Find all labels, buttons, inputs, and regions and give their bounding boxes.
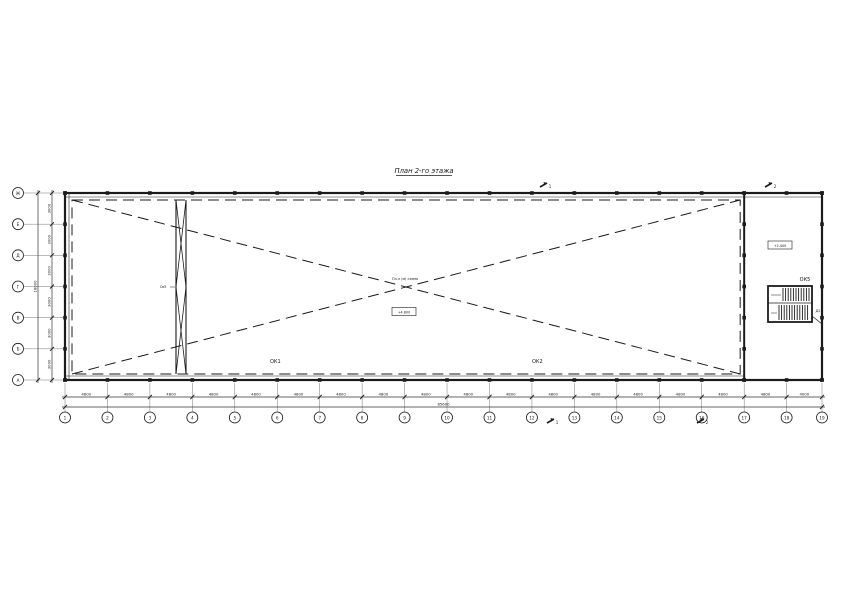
axis-bubble-column: 10 bbox=[442, 412, 453, 423]
column-marker bbox=[63, 347, 67, 351]
column-marker bbox=[360, 378, 364, 382]
column-marker bbox=[403, 191, 407, 195]
bay-dimension: 4800 bbox=[124, 391, 134, 396]
column-marker bbox=[318, 378, 322, 382]
bay-dimension: 4800 bbox=[81, 391, 91, 396]
column-marker bbox=[63, 191, 67, 195]
section-number: 1 bbox=[556, 420, 559, 425]
bay-dimension: 4800 bbox=[633, 391, 643, 396]
axis-number: 15 bbox=[657, 415, 663, 420]
axis-bubble-column: 2 bbox=[102, 412, 113, 423]
column-marker bbox=[700, 378, 704, 382]
column-marker bbox=[403, 378, 407, 382]
column-marker bbox=[530, 191, 534, 195]
column-marker bbox=[148, 191, 152, 195]
axis-number: 6 bbox=[276, 415, 279, 420]
axis-number: 14 bbox=[614, 415, 620, 420]
column-marker bbox=[191, 378, 195, 382]
row-dimension: 3000 bbox=[47, 328, 52, 338]
column-marker bbox=[657, 378, 661, 382]
window-mark-ok2: ОК2 bbox=[532, 359, 543, 365]
axis-bubble-row: Б bbox=[13, 343, 34, 354]
bay-dimension: 4800 bbox=[421, 391, 431, 396]
column-marker bbox=[742, 378, 746, 382]
bay-dimension: 4000 bbox=[799, 391, 809, 396]
column-marker bbox=[275, 378, 279, 382]
axis-bubble-row: Г bbox=[13, 281, 34, 292]
bay-dimension: 4800 bbox=[506, 391, 516, 396]
column-marker bbox=[488, 191, 492, 195]
section-cut-marks: 1212 bbox=[540, 182, 777, 425]
page-title: План 2-го этажа bbox=[394, 167, 453, 175]
axis-number: 2 bbox=[106, 415, 109, 420]
column-marker bbox=[742, 316, 746, 320]
column-marker bbox=[785, 378, 789, 382]
axis-letter: Е bbox=[17, 222, 20, 227]
section-number: 1 bbox=[549, 184, 552, 189]
column-marker bbox=[820, 347, 824, 351]
column-marker bbox=[742, 347, 746, 351]
total-width-dimension: 85600 bbox=[437, 401, 450, 406]
bay-dimension: 4800 bbox=[548, 391, 558, 396]
axis-bubble-column: 14 bbox=[611, 412, 622, 423]
column-marker bbox=[148, 378, 152, 382]
column-marker bbox=[63, 316, 67, 320]
door-mark-d2: Д2 bbox=[816, 309, 821, 313]
column-marker bbox=[785, 191, 789, 195]
row-dimension: 3000 bbox=[47, 359, 52, 369]
drawing-sheet: План 2-го этажа 480048004800480048004800… bbox=[0, 0, 842, 595]
bay-dimension: 4800 bbox=[718, 391, 728, 396]
axis-bubble-row: В bbox=[13, 312, 34, 323]
column-marker bbox=[615, 191, 619, 195]
column-marker bbox=[820, 254, 824, 258]
axis-letter: Б bbox=[17, 347, 20, 352]
axis-bubble-row: Е bbox=[13, 219, 34, 230]
bottom-axis-bubbles: 12345678910111213141516171819 bbox=[60, 412, 828, 423]
column-marker bbox=[445, 378, 449, 382]
title-block: План 2-го этажа bbox=[394, 167, 453, 176]
bay-dimension: 4800 bbox=[294, 391, 304, 396]
axis-number: 10 bbox=[444, 415, 450, 420]
row-dimension: 3000 bbox=[47, 203, 52, 213]
window-mark-ok5: ОК5 bbox=[800, 277, 811, 283]
bottom-dimension-lines: 4800480048004800480048004800480048004800… bbox=[62, 383, 825, 412]
axis-bubble-column: 7 bbox=[314, 412, 325, 423]
column-marker bbox=[233, 378, 237, 382]
column-marker bbox=[615, 378, 619, 382]
column-marker bbox=[573, 378, 577, 382]
axis-bubble-column: 4 bbox=[187, 412, 198, 423]
column-marker bbox=[573, 191, 577, 195]
axis-number: 4 bbox=[191, 415, 194, 420]
axis-number: 9 bbox=[403, 415, 406, 420]
section-number: 2 bbox=[774, 184, 777, 189]
axis-number: 8 bbox=[361, 415, 364, 420]
column-marker bbox=[742, 254, 746, 258]
section-mark: 2 bbox=[765, 182, 777, 189]
axis-number: 13 bbox=[572, 415, 578, 420]
column-marker bbox=[488, 378, 492, 382]
axis-bubble-row: А bbox=[13, 375, 34, 386]
bay-dimension: 4800 bbox=[676, 391, 686, 396]
column-marker bbox=[742, 222, 746, 226]
column-marker bbox=[820, 191, 824, 195]
axis-number: 19 bbox=[819, 415, 825, 420]
column-marker bbox=[63, 222, 67, 226]
column-marker bbox=[820, 378, 824, 382]
column-marker bbox=[63, 285, 67, 289]
plan-annotations: ОК1 ОК2 ОК5 Д2 Св5 Пл-н (м) схема +4.800… bbox=[160, 241, 821, 365]
stair-elevation-value: +2.400 bbox=[774, 244, 787, 248]
axis-bubble-column: 13 bbox=[569, 412, 580, 423]
axis-number: 1 bbox=[64, 415, 67, 420]
bay-dimension: 4800 bbox=[336, 391, 346, 396]
axis-letter: В bbox=[17, 315, 20, 320]
window-mark-ok1: ОК1 bbox=[270, 359, 281, 365]
column-marker bbox=[700, 191, 704, 195]
axis-bubble-column: 5 bbox=[229, 412, 240, 423]
axis-letter: Г bbox=[17, 284, 20, 289]
axis-bubble-column: 17 bbox=[739, 412, 750, 423]
column-marker bbox=[63, 254, 67, 258]
axis-bubble-column: 12 bbox=[526, 412, 537, 423]
axis-bubble-column: 3 bbox=[144, 412, 155, 423]
bay-dimension: 4800 bbox=[761, 391, 771, 396]
stair-block bbox=[768, 286, 822, 324]
left-axis-bubbles: ЖЕДГВБА bbox=[13, 188, 34, 386]
section-number: 2 bbox=[706, 420, 709, 425]
section-mark: 1 bbox=[547, 418, 559, 425]
axis-number: 5 bbox=[233, 415, 236, 420]
axis-bubble-row: Д bbox=[13, 250, 34, 261]
row-dimension: 3000 bbox=[47, 297, 52, 307]
column-marker bbox=[820, 285, 824, 289]
brace-mark: Св5 bbox=[160, 285, 167, 289]
column-marker bbox=[275, 191, 279, 195]
axis-letter: А bbox=[17, 378, 20, 383]
building-outline bbox=[63, 191, 824, 382]
axis-bubble-column: 1 bbox=[60, 412, 71, 423]
column-marker bbox=[820, 222, 824, 226]
axis-bubble-column: 19 bbox=[817, 412, 828, 423]
column-marker bbox=[530, 378, 534, 382]
axis-number: 17 bbox=[742, 415, 748, 420]
column-marker bbox=[360, 191, 364, 195]
bay-dimension: 4800 bbox=[251, 391, 261, 396]
left-dimension-lines: 30003000300030003000300018000 bbox=[33, 190, 64, 383]
column-marker bbox=[106, 378, 110, 382]
bay-dimension: 4800 bbox=[209, 391, 219, 396]
axis-bubble-column: 11 bbox=[484, 412, 495, 423]
column-marker bbox=[318, 191, 322, 195]
axis-bubble-column: 18 bbox=[781, 412, 792, 423]
column-marker bbox=[742, 191, 746, 195]
total-height-dimension: 18000 bbox=[33, 280, 38, 293]
column-marker bbox=[445, 191, 449, 195]
axis-number: 12 bbox=[529, 415, 535, 420]
column-marker bbox=[820, 316, 824, 320]
column-marker bbox=[191, 191, 195, 195]
column-marker bbox=[233, 191, 237, 195]
axis-number: 18 bbox=[784, 415, 790, 420]
axis-number: 7 bbox=[318, 415, 321, 420]
axis-number: 11 bbox=[487, 415, 493, 420]
axis-bubble-column: 9 bbox=[399, 412, 410, 423]
bay-dimension: 4800 bbox=[463, 391, 473, 396]
column-marker bbox=[657, 191, 661, 195]
column-marker bbox=[106, 191, 110, 195]
axis-letter: Ж bbox=[16, 191, 21, 196]
floor-plan-drawing: План 2-го этажа 480048004800480048004800… bbox=[0, 0, 842, 595]
bay-dimension: 4800 bbox=[166, 391, 176, 396]
axis-bubble-column: 6 bbox=[272, 412, 283, 423]
center-note: Пл-н (м) схема bbox=[392, 277, 418, 281]
axis-bubble-column: 15 bbox=[654, 412, 665, 423]
column-marker bbox=[63, 378, 67, 382]
section-mark: 1 bbox=[540, 182, 552, 189]
row-dimension: 3000 bbox=[47, 266, 52, 276]
bay-dimension: 4800 bbox=[591, 391, 601, 396]
center-elevation-value: +4.800 bbox=[398, 310, 411, 314]
axis-bubble-column: 8 bbox=[357, 412, 368, 423]
row-dimension: 3000 bbox=[47, 234, 52, 244]
axis-bubble-row: Ж bbox=[13, 188, 34, 199]
column-marker bbox=[742, 285, 746, 289]
bay-dimension: 4800 bbox=[379, 391, 389, 396]
axis-number: 3 bbox=[149, 415, 152, 420]
